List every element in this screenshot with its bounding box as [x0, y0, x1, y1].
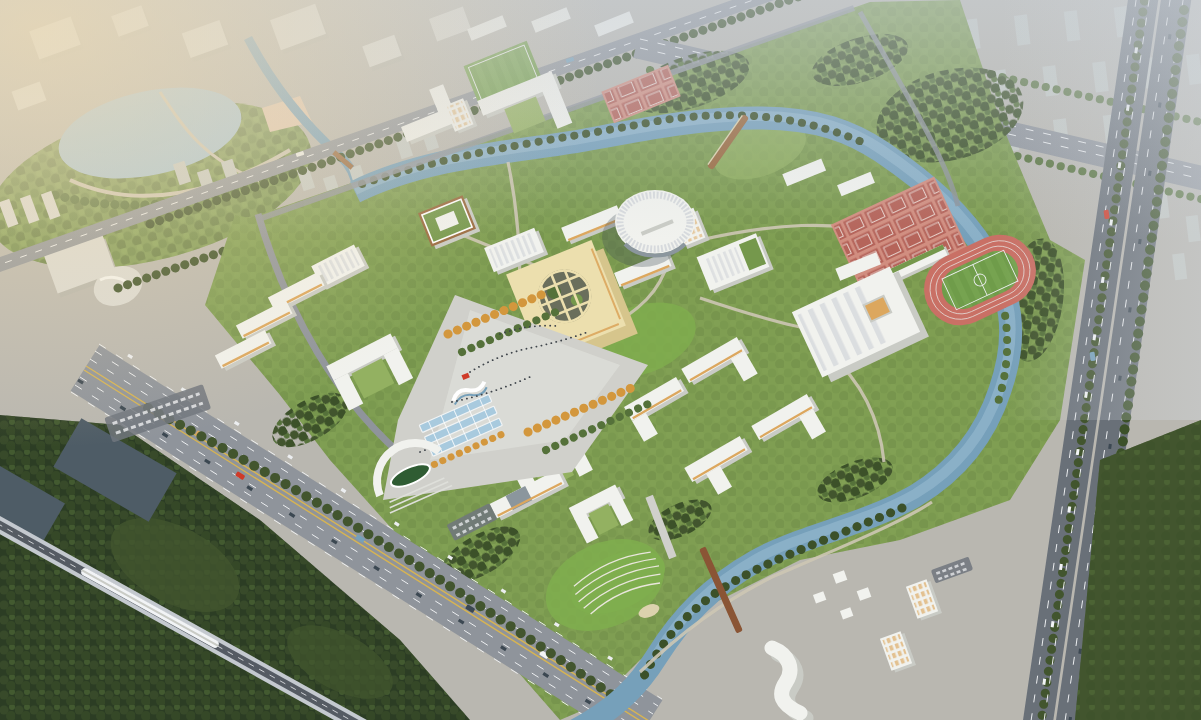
fountain — [451, 381, 488, 404]
avenue-traffic — [78, 355, 656, 720]
dorm-courts — [601, 65, 680, 123]
parking-lot-east — [931, 557, 973, 584]
city-blocks-west — [0, 4, 471, 313]
aerial-campus-render — [0, 0, 1201, 720]
sports-courts — [831, 177, 967, 296]
dorm-tower — [444, 97, 477, 134]
nw-canal — [248, 38, 357, 190]
roof-courtyard — [529, 261, 599, 331]
forest-corner-southeast — [1075, 420, 1201, 720]
train — [80, 567, 220, 650]
curved-landmark-building — [88, 259, 149, 313]
main-gate — [365, 432, 454, 513]
campus-river — [355, 115, 1011, 720]
round-auditorium — [602, 190, 695, 267]
rail-viaduct — [0, 500, 390, 720]
forest-southwest — [0, 415, 470, 720]
ribbed-hall-west — [311, 243, 369, 291]
apartment-towers-west — [173, 127, 439, 200]
city-blocks-east — [905, 0, 1201, 335]
central-plaza — [383, 292, 648, 500]
dorm-cluster-north — [392, 7, 681, 152]
soccer-field-main — [935, 244, 1025, 316]
residential-tower — [906, 578, 942, 621]
practice-field — [464, 41, 543, 105]
expressway-traffic — [1035, 0, 1180, 720]
river-tower — [671, 207, 710, 250]
red-sculpture — [461, 373, 469, 380]
crowds — [420, 326, 588, 452]
highway-northeast — [636, 39, 1201, 200]
ground-base — [0, 0, 1201, 720]
expressway-east — [1029, 0, 1186, 720]
boulevard-north — [0, 0, 852, 288]
solar-canopies — [417, 393, 507, 464]
academic-cluster-south — [624, 336, 830, 503]
lake — [50, 73, 249, 194]
grandstand — [886, 244, 950, 285]
path-bridge — [645, 495, 676, 559]
residential-southeast — [772, 557, 973, 718]
lecture-hall-east — [697, 232, 774, 294]
parking-lot-south — [447, 503, 498, 541]
campus-roads — [258, 8, 958, 672]
city-park-west — [0, 72, 328, 297]
haze-right — [1000, 0, 1201, 420]
render-canvas — [0, 0, 1201, 720]
ribbed-hall-center — [484, 227, 548, 276]
corten-bridge-south — [699, 547, 743, 634]
dark-canals — [0, 418, 177, 541]
s-curve-building — [772, 648, 806, 718]
terraced-lawn — [561, 537, 674, 627]
courtyard-building-west — [326, 332, 416, 411]
gymnasium — [792, 264, 929, 385]
courtyard-cluster-south — [447, 422, 636, 543]
residential-tower — [880, 630, 916, 673]
cars — [296, 57, 575, 157]
courts-apron — [831, 177, 967, 296]
haze-top — [0, 0, 1201, 240]
campus-grounds — [205, 0, 1085, 720]
arch-bridge-north — [707, 114, 749, 170]
parking-lot-west — [104, 384, 211, 442]
dorm-buildings — [392, 7, 634, 152]
bridges — [332, 114, 749, 634]
main-avenue — [71, 344, 662, 720]
dorm-cluster-river — [561, 159, 881, 291]
warm-glow — [0, 0, 760, 560]
library-green-roof — [418, 194, 480, 250]
running-track — [912, 223, 1048, 337]
academic-cluster-west — [215, 271, 416, 411]
main-cube-building — [506, 237, 638, 371]
river-beach — [637, 601, 662, 620]
campus-tree-masses — [264, 24, 1072, 595]
small-bridge-nw — [332, 150, 354, 169]
pavilion-houses — [813, 570, 871, 619]
park-plaza — [262, 96, 312, 132]
plaza-tree-rows — [448, 292, 648, 450]
